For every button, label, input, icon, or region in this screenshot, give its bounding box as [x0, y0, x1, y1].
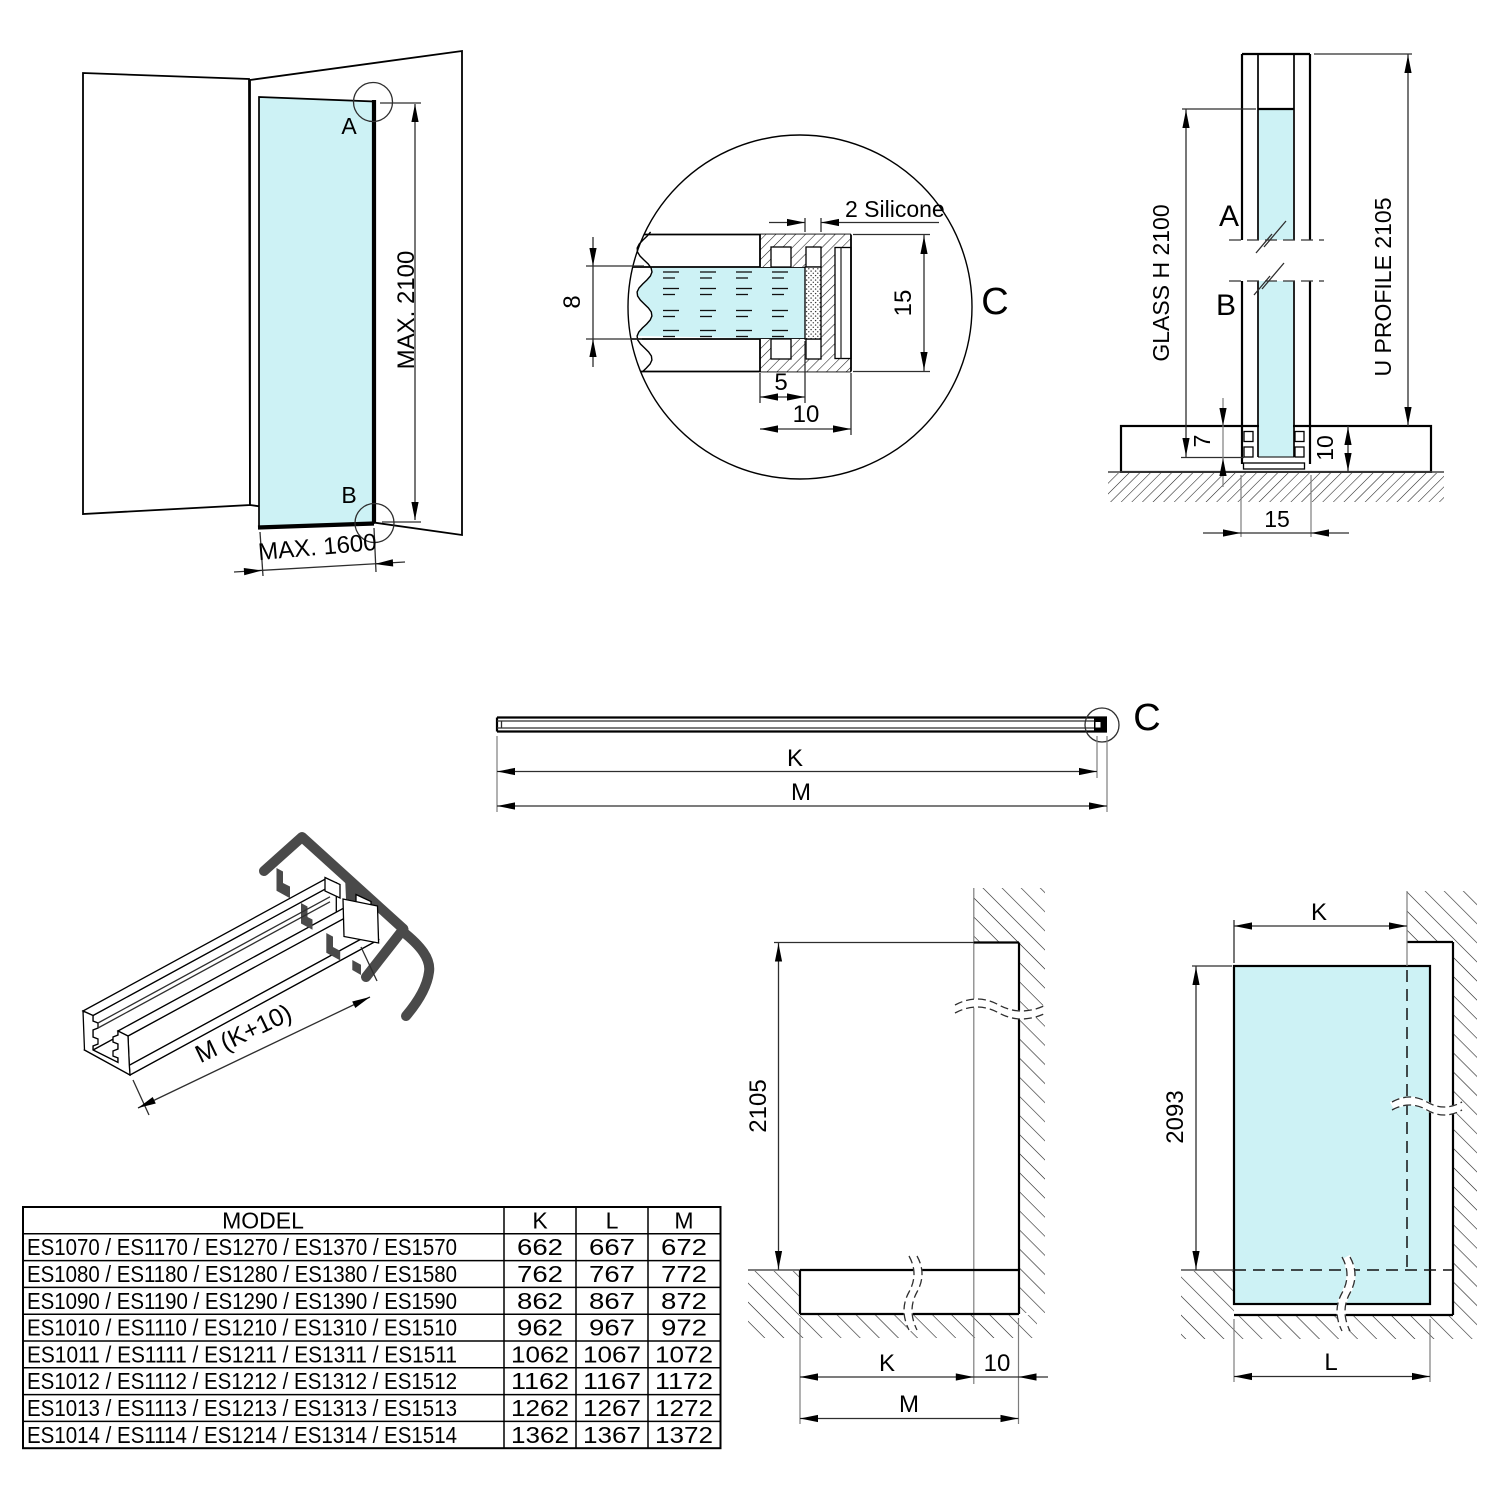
- svg-text:ES1070 / ES1170 / ES1270 / ES1: ES1070 / ES1170 / ES1270 / ES1370 / ES15…: [27, 1234, 457, 1260]
- svg-text:1162: 1162: [511, 1368, 569, 1394]
- svg-text:1372: 1372: [655, 1422, 713, 1448]
- svg-text:C: C: [981, 281, 1008, 323]
- svg-text:967: 967: [589, 1315, 635, 1341]
- svg-text:B: B: [341, 482, 356, 508]
- svg-text:K: K: [879, 1350, 895, 1377]
- svg-text:10: 10: [984, 1350, 1011, 1377]
- svg-text:MODEL: MODEL: [222, 1207, 304, 1233]
- svg-text:7: 7: [1189, 435, 1215, 448]
- svg-text:A: A: [341, 113, 357, 139]
- svg-text:ES1090 / ES1190 / ES1290 / ES1: ES1090 / ES1190 / ES1290 / ES1390 / ES15…: [27, 1288, 457, 1314]
- svg-text:667: 667: [589, 1234, 635, 1260]
- svg-text:5: 5: [774, 369, 787, 396]
- svg-text:872: 872: [661, 1288, 707, 1314]
- svg-text:862: 862: [517, 1288, 563, 1314]
- svg-text:ES1011 / ES1111 / ES1211 / ES1: ES1011 / ES1111 / ES1211 / ES1311 / ES15…: [27, 1341, 457, 1367]
- svg-text:15: 15: [890, 290, 917, 317]
- svg-text:1267: 1267: [583, 1395, 641, 1421]
- svg-text:A: A: [1219, 200, 1239, 233]
- svg-text:MAX. 2100: MAX. 2100: [393, 251, 420, 370]
- svg-text:1167: 1167: [583, 1368, 641, 1394]
- svg-text:10: 10: [793, 401, 820, 428]
- svg-text:662: 662: [517, 1234, 563, 1260]
- svg-text:ES1014 / ES1114 / ES1214 / ES1: ES1014 / ES1114 / ES1214 / ES1314 / ES15…: [27, 1422, 457, 1448]
- svg-text:U PROFILE 2105: U PROFILE 2105: [1370, 198, 1396, 377]
- svg-text:1172: 1172: [655, 1368, 713, 1394]
- svg-text:2105: 2105: [745, 1079, 772, 1132]
- svg-text:962: 962: [517, 1315, 563, 1341]
- svg-text:1067: 1067: [583, 1341, 641, 1367]
- svg-text:M: M: [899, 1391, 919, 1418]
- svg-text:1062: 1062: [511, 1341, 569, 1367]
- svg-text:1272: 1272: [655, 1395, 713, 1421]
- svg-text:1362: 1362: [511, 1422, 569, 1448]
- svg-text:1262: 1262: [511, 1395, 569, 1421]
- svg-text:2 Silicone: 2 Silicone: [845, 196, 945, 222]
- svg-text:ES1013 / ES1113 / ES1213 / ES1: ES1013 / ES1113 / ES1213 / ES1313 / ES15…: [27, 1395, 457, 1421]
- svg-text:K: K: [1311, 899, 1327, 926]
- svg-text:B: B: [1216, 289, 1236, 322]
- svg-text:8: 8: [559, 295, 586, 308]
- svg-text:762: 762: [517, 1261, 563, 1287]
- svg-text:672: 672: [661, 1234, 707, 1260]
- svg-text:ES1010 / ES1110 / ES1210 / ES1: ES1010 / ES1110 / ES1210 / ES1310 / ES15…: [27, 1315, 457, 1341]
- svg-text:M: M: [791, 779, 811, 806]
- svg-text:1367: 1367: [583, 1422, 641, 1448]
- svg-text:972: 972: [661, 1315, 707, 1341]
- svg-text:M: M: [674, 1207, 693, 1233]
- svg-text:867: 867: [589, 1288, 635, 1314]
- svg-text:ES1080 / ES1180 / ES1280 / ES1: ES1080 / ES1180 / ES1280 / ES1380 / ES15…: [27, 1261, 457, 1287]
- svg-text:ES1012 / ES1112 / ES1212 / ES1: ES1012 / ES1112 / ES1212 / ES1312 / ES15…: [27, 1368, 457, 1394]
- svg-text:10: 10: [1312, 435, 1338, 461]
- svg-text:L: L: [606, 1207, 619, 1233]
- svg-text:C: C: [1133, 697, 1160, 739]
- svg-text:767: 767: [589, 1261, 635, 1287]
- svg-text:772: 772: [661, 1261, 707, 1287]
- svg-text:15: 15: [1264, 506, 1290, 532]
- svg-text:K: K: [532, 1207, 548, 1233]
- svg-text:2093: 2093: [1162, 1090, 1189, 1143]
- svg-text:GLASS H 2100: GLASS H 2100: [1148, 204, 1174, 361]
- svg-text:K: K: [787, 745, 803, 772]
- svg-text:1072: 1072: [655, 1341, 713, 1367]
- svg-text:L: L: [1324, 1349, 1337, 1376]
